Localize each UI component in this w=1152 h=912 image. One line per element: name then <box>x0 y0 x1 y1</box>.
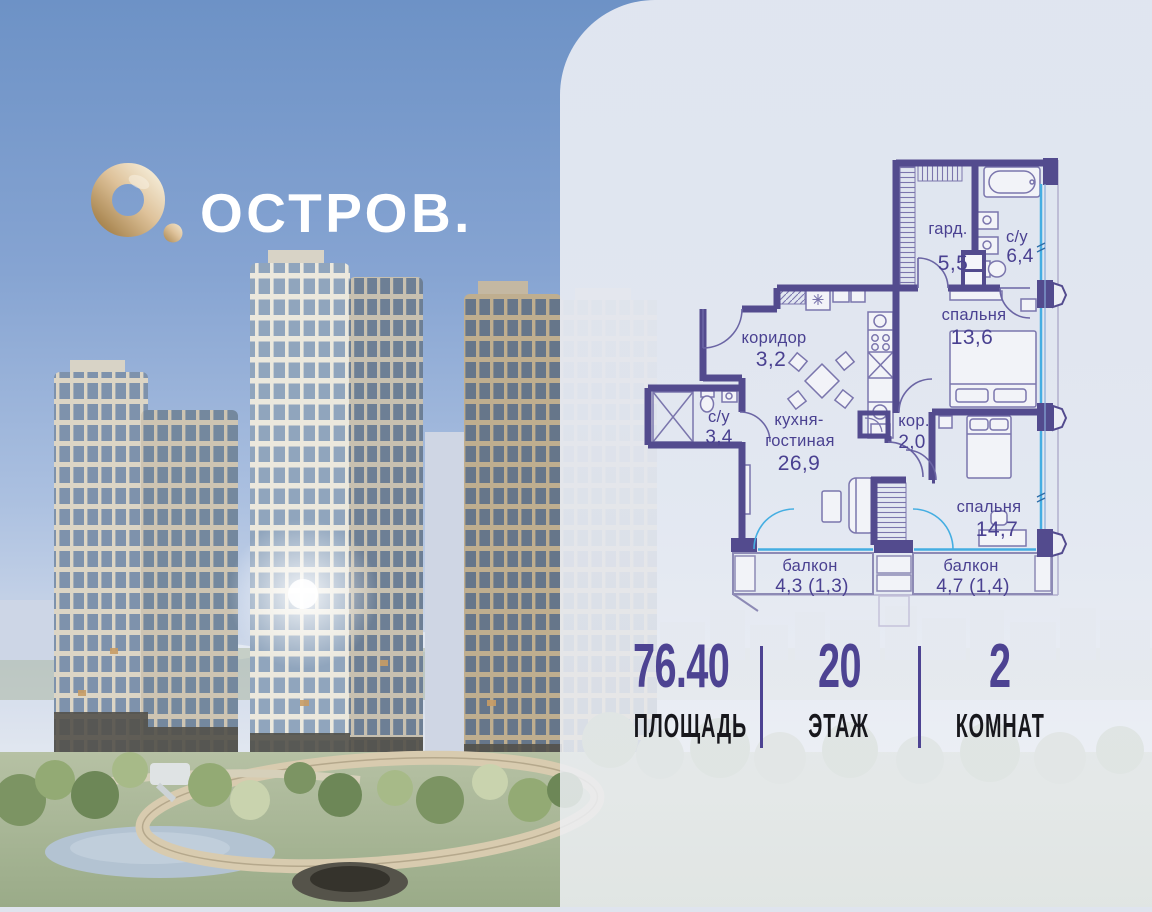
room-corridor-name: кор. <box>898 412 930 430</box>
room-balcony-right-name: балкон <box>943 557 998 575</box>
room-bath-small-area: 3,4 <box>705 427 732 448</box>
stat-rooms-value: 2 <box>915 638 1085 695</box>
stat-floor: 20 ЭТАЖ <box>754 638 924 742</box>
room-hallway-name: коридор <box>741 329 806 347</box>
bathtub-icon <box>984 167 1040 197</box>
tower-center-2 <box>349 277 423 792</box>
coffee-table <box>822 491 841 522</box>
room-bedroom-large-area: 13,6 <box>951 326 993 349</box>
room-corridor-area: 2,0 <box>898 432 925 453</box>
tower-left-2 <box>141 410 238 782</box>
toilet-icon <box>983 261 1006 277</box>
sink-icon <box>977 212 998 254</box>
stat-floor-label: ЭТАЖ <box>754 709 924 742</box>
room-bath-small-name: с/у <box>708 408 730 426</box>
room-kitchen-area: 26,9 <box>778 452 820 475</box>
washing-machine-icon <box>806 289 830 310</box>
dining-table-icon <box>788 352 854 409</box>
room-kitchen-name-1: кухня- <box>774 411 823 429</box>
room-hallway-area: 3,2 <box>756 348 786 371</box>
room-kitchen-name-2: гостиная <box>765 432 834 450</box>
cabinet <box>833 290 849 302</box>
stat-rooms: 2 КОМНАТ <box>915 638 1085 742</box>
floor-plan: гард. 5,5 с/у 6,4 спальня 13,6 коридор 3… <box>630 140 1090 645</box>
stat-area: 76.40 ПЛОЩАДЬ <box>596 638 766 742</box>
cabinet <box>851 290 865 302</box>
logo-dot-icon <box>164 224 183 243</box>
nightstand <box>1021 299 1036 311</box>
brand-logo: ОСТРОВ. <box>86 156 516 252</box>
room-bedroom-small-name: спальня <box>957 498 1022 516</box>
room-wardrobe-name: гард. <box>928 220 967 238</box>
room-balcony-left-name: балкон <box>782 557 837 575</box>
room-bath-large-area: 6,4 <box>1006 246 1033 267</box>
nightstand <box>939 416 952 428</box>
fixtures <box>653 167 1040 546</box>
stat-area-value: 76.40 <box>596 638 766 695</box>
room-bedroom-small-area: 14,7 <box>976 518 1018 541</box>
stats-bar: 76.40 ПЛОЩАДЬ 20 ЭТАЖ 2 КОМНАТ <box>560 638 1152 768</box>
room-bath-large-name: с/у <box>1006 228 1028 246</box>
dresser <box>950 291 1002 300</box>
bed-small-icon <box>967 416 1011 478</box>
room-balcony-left-area: 4,3 (1,3) <box>775 576 848 597</box>
playground <box>150 763 190 785</box>
sink-small-icon <box>722 391 737 402</box>
bay-piers <box>1052 283 1066 556</box>
shaft-icon <box>653 392 693 442</box>
stat-area-label: ПЛОЩАДЬ <box>596 709 766 742</box>
room-balcony-right-area: 4,7 (1,4) <box>936 576 1009 597</box>
stat-floor-value: 20 <box>754 638 924 695</box>
tower-left <box>54 372 148 767</box>
room-bedroom-large-name: спальня <box>942 306 1007 324</box>
room-wardrobe-area: 5,5 <box>938 252 968 275</box>
stat-rooms-label: КОМНАТ <box>915 709 1085 742</box>
brand-name: ОСТРОВ. <box>200 182 473 244</box>
tower-right <box>464 294 562 799</box>
